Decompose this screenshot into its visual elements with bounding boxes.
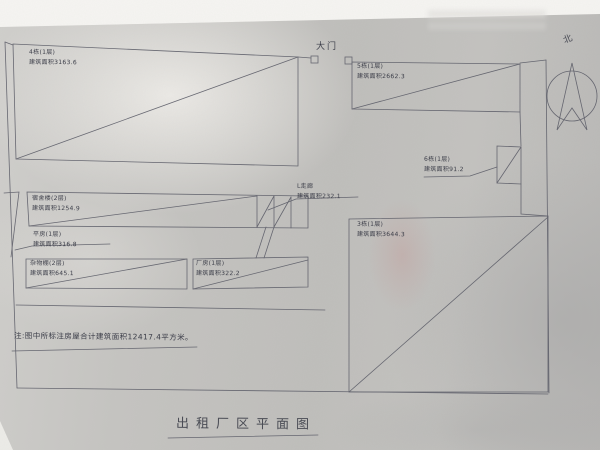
- building-name: 宿舍楼(2层): [32, 194, 80, 205]
- paper-grain: [0, 14, 600, 450]
- building-area: 建筑面积3644.3: [357, 230, 405, 241]
- workshop-label: 厂房(1层) 建筑面积322.2: [196, 259, 240, 279]
- flat-house-label: 平房(1层) 建筑面积316.8: [33, 230, 77, 250]
- building-area: 建筑面积3163.6: [29, 58, 77, 69]
- building-4-label: 4栋(1层) 建筑面积3163.6: [29, 48, 77, 69]
- building-area: 建筑面积1254.9: [32, 204, 80, 215]
- building-area: 建筑面积316.8: [33, 240, 77, 250]
- total-area-note: 注:图中所标注房屋合计建筑面积12417.4平方米。: [14, 330, 193, 343]
- building-3-label: 3栋(1层) 建筑面积3644.3: [357, 220, 405, 241]
- building-name: 5栋(1层): [357, 62, 405, 73]
- building-6-label: 6栋(1层) 建筑面积91.2: [424, 155, 464, 175]
- site-plan-drawing: [0, 0, 600, 450]
- building-5-label: 5栋(1层) 建筑面积2662.3: [357, 62, 405, 83]
- building-area: 建筑面积91.2: [424, 165, 464, 175]
- building-name: 4栋(1层): [29, 48, 77, 59]
- building-name: 6栋(1层): [424, 155, 464, 165]
- gate-label: 大门: [316, 39, 338, 52]
- building-name: 3栋(1层): [357, 220, 405, 231]
- shed-label: 杂物棚(2层) 建筑面积645.1: [30, 259, 74, 279]
- dormitory-label: 宿舍楼(2层) 建筑面积1254.9: [32, 194, 80, 215]
- building-area: 建筑面积645.1: [30, 269, 74, 279]
- building-area: 建筑面积232.1: [297, 192, 341, 202]
- photo-of-site-plan: 大门 北 4栋(1层) 建筑面积3163.6 5栋(1层) 建筑面积2662.3…: [0, 0, 600, 450]
- building-area: 建筑面积2662.3: [357, 72, 405, 83]
- building-name: 平房(1层): [33, 230, 77, 240]
- building-name: L走廊: [297, 182, 341, 192]
- drawing-title: 出租厂区平面图: [176, 413, 316, 433]
- corridor-label: L走廊 建筑面积232.1: [297, 182, 341, 202]
- building-name: 厂房(1层): [196, 259, 240, 269]
- building-name: 杂物棚(2层): [30, 259, 74, 269]
- building-area: 建筑面积322.2: [196, 269, 240, 279]
